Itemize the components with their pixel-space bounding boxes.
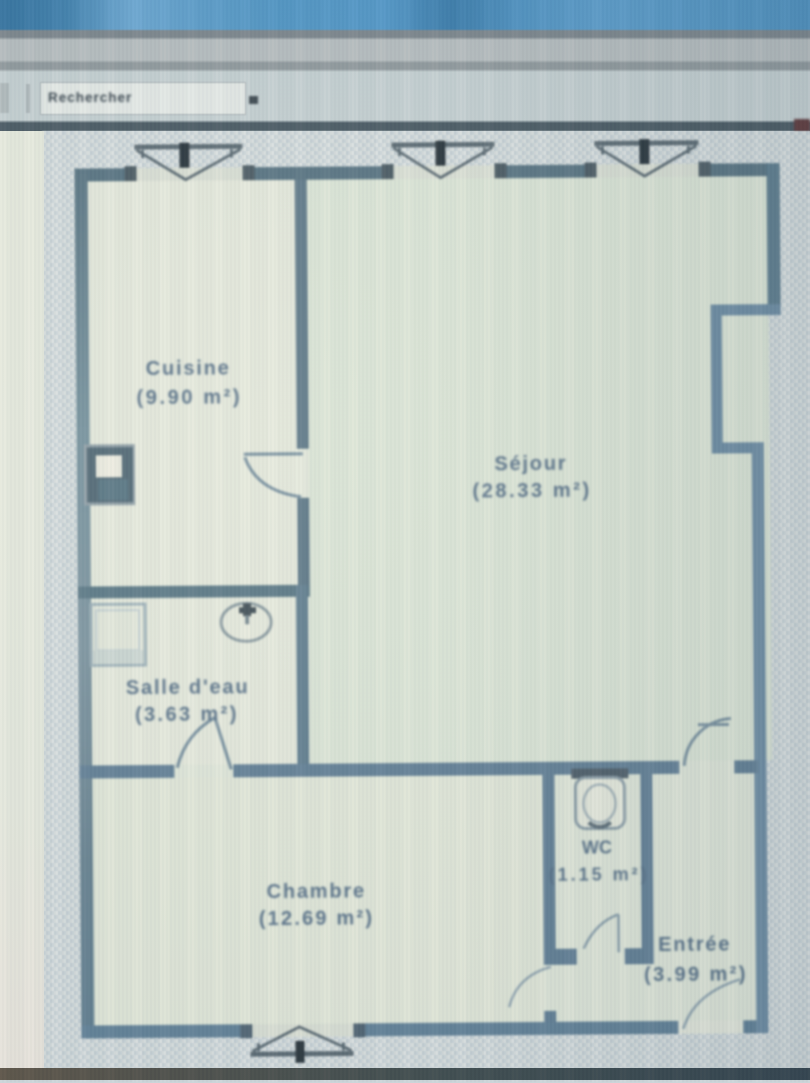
svg-text:(3.63 m²): (3.63 m²): [135, 703, 239, 726]
svg-text:Séjour: Séjour: [494, 453, 567, 476]
svg-text:(3.99 m²): (3.99 m²): [644, 963, 748, 986]
svg-text:Chambre: Chambre: [267, 880, 366, 903]
svg-text:WC: WC: [582, 837, 612, 857]
svg-text:Entrée: Entrée: [658, 933, 731, 956]
svg-text:Salle d'eau: Salle d'eau: [126, 676, 250, 699]
svg-text:(9.90 m²): (9.90 m²): [136, 386, 242, 409]
svg-text:(28.33 m²): (28.33 m²): [472, 480, 592, 503]
svg-text:(1.15 m²): (1.15 m²): [549, 864, 650, 885]
svg-text:Cuisine: Cuisine: [146, 357, 231, 380]
svg-text:(12.69 m²): (12.69 m²): [259, 907, 375, 930]
